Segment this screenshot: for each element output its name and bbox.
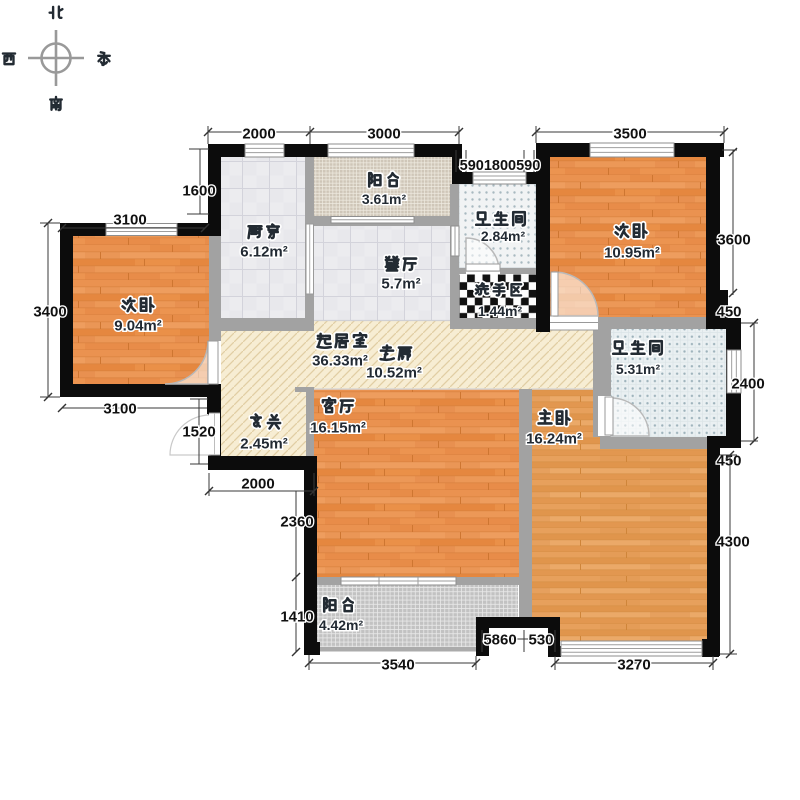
svg-text:36.33m²: 36.33m² bbox=[312, 352, 368, 369]
svg-text:2360: 2360 bbox=[280, 513, 313, 530]
svg-text:2000: 2000 bbox=[242, 125, 275, 142]
svg-text:5860: 5860 bbox=[483, 631, 516, 648]
svg-text:5901800590: 5901800590 bbox=[460, 158, 541, 174]
svg-text:1410: 1410 bbox=[280, 608, 313, 625]
svg-text:4300: 4300 bbox=[716, 533, 749, 550]
svg-text:2.84m²: 2.84m² bbox=[481, 228, 526, 244]
svg-text:1.44m²: 1.44m² bbox=[478, 303, 523, 319]
svg-text:3100: 3100 bbox=[113, 211, 146, 228]
svg-text:16.24m²: 16.24m² bbox=[526, 430, 582, 447]
svg-text:2000: 2000 bbox=[241, 475, 274, 492]
svg-text:5.7m²: 5.7m² bbox=[381, 275, 420, 292]
svg-text:1520: 1520 bbox=[182, 423, 215, 440]
svg-text:3.61m²: 3.61m² bbox=[362, 191, 407, 207]
svg-text:16.15m²: 16.15m² bbox=[310, 419, 366, 436]
svg-text:2400: 2400 bbox=[731, 375, 764, 392]
svg-text:6.12m²: 6.12m² bbox=[240, 243, 288, 260]
svg-text:9.04m²: 9.04m² bbox=[114, 317, 162, 334]
svg-text:1600: 1600 bbox=[182, 182, 215, 199]
svg-text:3100: 3100 bbox=[103, 400, 136, 417]
svg-text:10.95m²: 10.95m² bbox=[604, 244, 660, 261]
svg-text:3000: 3000 bbox=[367, 125, 400, 142]
svg-text:3540: 3540 bbox=[381, 656, 414, 673]
svg-text:4.42m²: 4.42m² bbox=[319, 617, 364, 633]
svg-text:530: 530 bbox=[528, 631, 553, 648]
svg-text:3600: 3600 bbox=[717, 231, 750, 248]
svg-text:3270: 3270 bbox=[617, 656, 650, 673]
svg-text:450: 450 bbox=[716, 303, 741, 320]
svg-text:3500: 3500 bbox=[613, 125, 646, 142]
svg-text:10.52m²: 10.52m² bbox=[366, 364, 422, 381]
svg-text:5.31m²: 5.31m² bbox=[616, 361, 661, 377]
svg-text:3400: 3400 bbox=[33, 303, 66, 320]
svg-text:2.45m²: 2.45m² bbox=[240, 435, 288, 452]
